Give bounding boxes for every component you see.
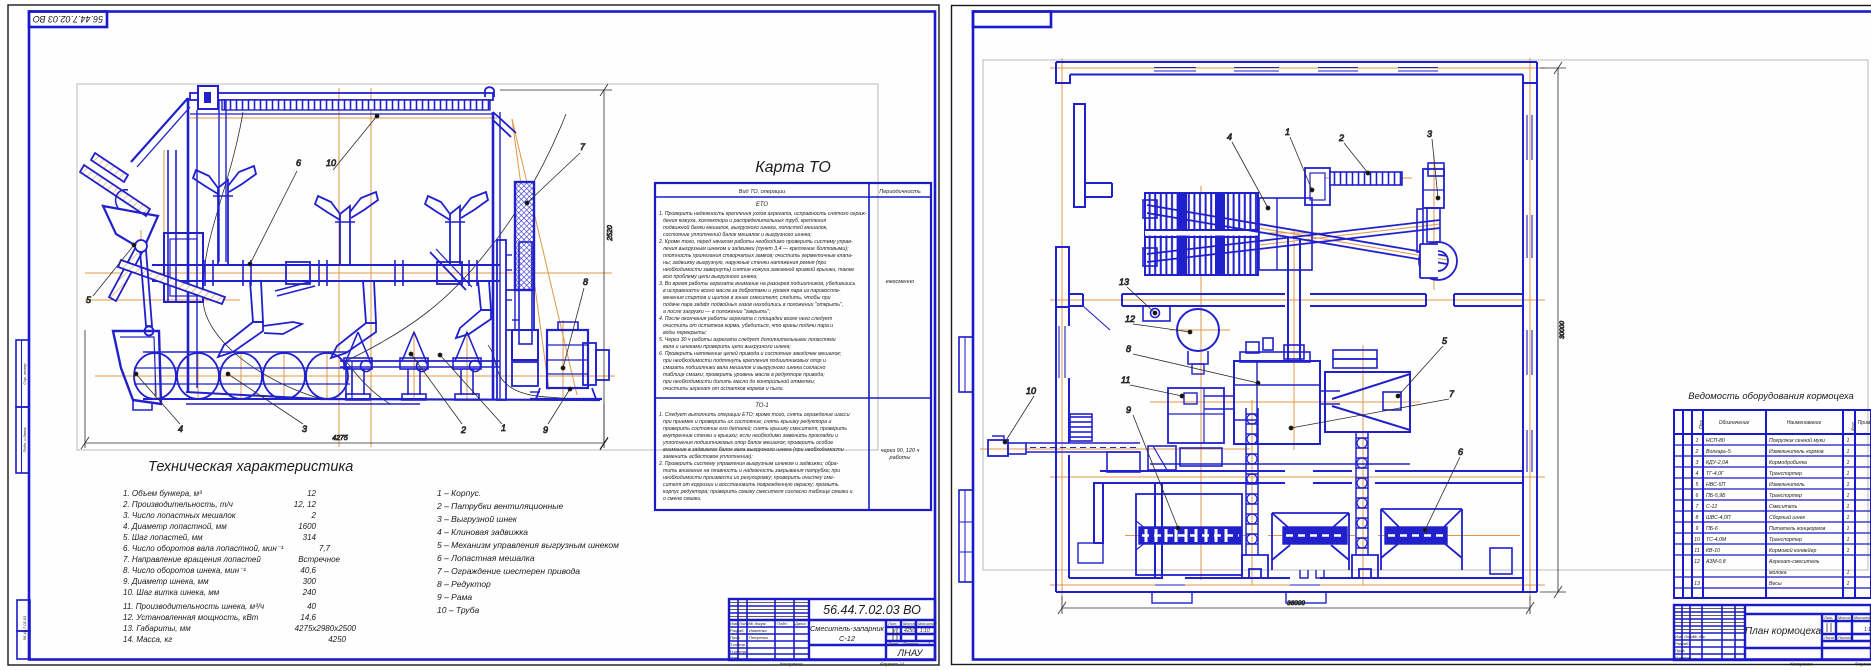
svg-text:4: 4 <box>178 424 183 434</box>
svg-text:КДУ-2,0А: КДУ-2,0А <box>1706 460 1729 466</box>
svg-text:2. Производительность, т/ч: 2. Производительность, т/ч <box>122 500 233 509</box>
svg-text:очистить от остатков корма, уб: очистить от остатков корма, убедиться, ч… <box>663 323 833 329</box>
svg-text:1 – Корпус.: 1 – Корпус. <box>437 488 481 498</box>
svg-text:9. Диаметр шнека, мм: 9. Диаметр шнека, мм <box>123 577 209 586</box>
svg-text:9: 9 <box>1696 526 1699 532</box>
svg-text:12: 12 <box>307 489 316 498</box>
svg-text:а после загрузки — в положении: а после загрузки — в положении "закрыть"… <box>663 309 771 315</box>
svg-text:Формат: Формат <box>1855 662 1871 667</box>
svg-text:2: 2 <box>311 511 317 520</box>
svg-text:3. Число лопастных мешалок: 3. Число лопастных мешалок <box>123 511 237 520</box>
svg-text:молока: молока <box>1769 570 1787 576</box>
svg-text:1600: 1600 <box>298 522 316 531</box>
svg-text:1: 1 <box>1847 449 1850 455</box>
svg-text:КВ-10: КВ-10 <box>1706 548 1720 554</box>
svg-text:12, 12: 12, 12 <box>294 500 317 509</box>
svg-text:8: 8 <box>583 277 588 287</box>
svg-text:Пров.: Пров. <box>730 635 741 640</box>
svg-text:13: 13 <box>1119 277 1129 287</box>
svg-text:4. Диаметр лопастной, мм: 4. Диаметр лопастной, мм <box>123 522 227 531</box>
svg-text:Карта ТО: Карта ТО <box>755 159 831 176</box>
svg-text:314: 314 <box>303 533 317 542</box>
svg-text:2 – Патрубки вентиляционные: 2 – Патрубки вентиляционные <box>436 501 564 511</box>
svg-text:8: 8 <box>1696 515 1699 521</box>
svg-text:1: 1 <box>1847 438 1850 444</box>
svg-text:10: 10 <box>326 158 336 168</box>
svg-text:14. Масса, кг: 14. Масса, кг <box>123 635 172 644</box>
svg-text:Н.контр.: Н.контр. <box>1675 655 1692 660</box>
svg-text:Листов: Листов <box>1837 635 1853 640</box>
svg-text:Питатель концкормов: Питатель концкормов <box>1769 526 1826 532</box>
svg-text:13: 13 <box>1694 581 1700 587</box>
svg-text:36000: 36000 <box>1287 600 1305 607</box>
svg-text:Иваненко: Иваненко <box>749 628 768 633</box>
svg-text:40: 40 <box>307 602 316 611</box>
svg-text:56.44.7.02.03 ВО: 56.44.7.02.03 ВО <box>33 14 103 24</box>
svg-text:2. Проверить систему управлени: 2. Проверить систему управления выгрузны… <box>658 461 839 467</box>
svg-text:№ док.: № док. <box>1693 634 1706 639</box>
svg-text:плотность прилегания створчаты: плотность прилегания створчатых замков; … <box>663 253 853 259</box>
svg-text:ления выгрузным шнеком и задви: ления выгрузным шнеком и задвижки (пункт… <box>662 246 849 252</box>
svg-text:№ докум.: № докум. <box>749 621 767 626</box>
svg-text:воды перекрыты;: воды перекрыты; <box>663 330 707 336</box>
svg-text:внутренние стенки и крышки; ес: внутренние стенки и крышки; если необход… <box>663 433 838 439</box>
svg-text:в исправности всего масла за д: в исправности всего масла за добротами и… <box>663 288 841 294</box>
svg-text:8. Число оборотов шнека, мин⁻¹: 8. Число оборотов шнека, мин⁻¹ <box>123 566 246 575</box>
svg-text:проверить состояние его детале: проверить состояние его деталей; снять к… <box>663 425 847 432</box>
svg-text:ТГ-4,0Г: ТГ-4,0Г <box>1706 471 1725 477</box>
svg-text:Т.контр.: Т.контр. <box>730 642 746 647</box>
svg-text:14,6: 14,6 <box>300 613 316 622</box>
svg-text:необходимости произвести их ре: необходимости произвести их регулировку;… <box>663 475 835 481</box>
svg-text:Кол.: Кол. <box>1851 421 1857 431</box>
svg-text:ТС-4,0М: ТС-4,0М <box>1706 537 1727 543</box>
svg-text:10. Шаг витка шнека, мм: 10. Шаг витка шнека, мм <box>123 588 220 597</box>
svg-text:уплотнения подшипниковых опор: уплотнения подшипниковых опор балок меша… <box>662 440 833 446</box>
svg-text:вала и шнеками проверить цепи: вала и шнеками проверить цепи выгрузного… <box>663 344 791 350</box>
svg-text:2: 2 <box>1695 449 1699 455</box>
svg-text:Смеситель: Смеситель <box>1769 504 1798 510</box>
svg-text:Дата: Дата <box>794 621 806 626</box>
svg-text:ны; задвижку выгрузную, наружн: ны; задвижку выгрузную, наружные стенки … <box>663 260 826 266</box>
svg-text:6: 6 <box>1458 447 1463 457</box>
svg-text:ШВС-4,0П: ШВС-4,0П <box>1706 515 1731 521</box>
svg-text:Измельчитель: Измельчитель <box>1769 482 1805 488</box>
svg-text:Весы: Весы <box>1769 581 1782 587</box>
svg-text:Периодичность: Периодичность <box>879 189 921 195</box>
svg-text:Утв.: Утв. <box>730 655 739 660</box>
svg-text:НСП-80: НСП-80 <box>1706 438 1725 444</box>
svg-text:10 – Труба: 10 – Труба <box>437 605 479 615</box>
svg-text:1: 1 <box>1847 548 1850 554</box>
svg-text:Формат А1: Формат А1 <box>880 662 905 667</box>
svg-text:необходимости завернуть) сняти: необходимости завернуть) снятие кожуха з… <box>663 266 854 273</box>
svg-text:ПБ-5,9Б: ПБ-5,9Б <box>1706 493 1726 499</box>
svg-text:Лит.: Лит. <box>1823 615 1833 620</box>
svg-text:Транспортер: Транспортер <box>1769 537 1802 543</box>
svg-text:Спр. номер: Спр. номер <box>22 363 27 385</box>
svg-text:при необходимости долить масло: при необходимости долить масло до контро… <box>663 378 816 385</box>
svg-text:тить внимание на плавность и н: тить внимание на плавность и надежность … <box>663 468 840 474</box>
svg-text:о смене смазки.: о смене смазки. <box>663 496 702 502</box>
svg-text:подаче пара задвbr подвойных г: подаче пара задвbr подвойных газов наход… <box>663 301 843 308</box>
svg-text:Измельчитель кормов: Измельчитель кормов <box>1769 449 1824 455</box>
svg-text:4275х2980х2500: 4275х2980х2500 <box>295 624 357 633</box>
svg-text:1. Проверить надежность крепле: 1. Проверить надежность крепления узлов … <box>659 211 867 217</box>
svg-text:С-12: С-12 <box>1706 504 1717 510</box>
svg-text:Подп.: Подп. <box>777 621 788 626</box>
svg-text:2: 2 <box>1338 133 1344 143</box>
svg-text:Наименование: Наименование <box>1787 420 1822 426</box>
svg-text:4: 4 <box>1696 471 1699 477</box>
svg-text:1: 1 <box>1847 482 1850 488</box>
svg-text:5 – Механизм управления выгруз: 5 – Механизм управления выгрузным шнеком <box>437 540 619 550</box>
svg-text:6. Число оборотов вала лопастн: 6. Число оборотов вала лопастной, мин⁻¹ <box>123 544 284 553</box>
svg-text:Подп. и дата: Подп. и дата <box>22 427 27 453</box>
svg-text:Изм: Изм <box>730 621 738 626</box>
svg-text:Ведомость оборудования кормоце: Ведомость оборудования кормоцеха <box>1688 391 1854 402</box>
svg-text:5. Шаг лопастей, мм: 5. Шаг лопастей, мм <box>123 533 203 542</box>
svg-text:4275: 4275 <box>332 435 348 442</box>
svg-text:ЛНАУ: ЛНАУ <box>897 648 924 659</box>
svg-text:11: 11 <box>1694 548 1699 554</box>
svg-text:внимание в задвижках балок вал: внимание в задвижках балок вала выгрузно… <box>663 447 844 453</box>
svg-text:7. Направление вращения лопаст: 7. Направление вращения лопастей <box>123 555 261 564</box>
svg-text:30000: 30000 <box>1559 321 1566 339</box>
svg-text:11: 11 <box>1121 375 1130 385</box>
svg-text:300: 300 <box>303 577 317 586</box>
svg-text:1: 1 <box>1847 537 1850 543</box>
svg-text:12: 12 <box>1125 314 1135 324</box>
svg-text:13. Габариты, мм: 13. Габариты, мм <box>123 624 191 633</box>
svg-text:Пров.: Пров. <box>1675 648 1686 653</box>
svg-text:56.44.7.02.03 ВО: 56.44.7.02.03 ВО <box>823 603 921 617</box>
svg-text:Транспортер: Транспортер <box>1769 493 1802 499</box>
svg-text:10: 10 <box>1694 537 1700 543</box>
svg-text:4250: 4250 <box>904 628 915 634</box>
svg-text:Погрузчик сенной муки: Погрузчик сенной муки <box>1769 437 1825 444</box>
svg-text:56.44.7.02.03: 56.44.7.02.03 <box>22 615 27 640</box>
svg-text:4 – Клиновая задвижка: 4 – Клиновая задвижка <box>437 527 528 537</box>
svg-text:240: 240 <box>302 588 317 597</box>
svg-text:сителя от коррозии и восстанов: сителя от коррозии и восстановить повреж… <box>663 482 839 488</box>
svg-text:1: 1 <box>1847 570 1850 576</box>
svg-text:9: 9 <box>543 425 548 435</box>
svg-text:1: 1 <box>1847 581 1850 587</box>
svg-text:2: 2 <box>460 425 466 435</box>
svg-text:4: 4 <box>1227 132 1232 142</box>
svg-text:11. Производительность шнека,: 11. Производительность шнека, м³/ч <box>123 602 264 611</box>
svg-text:ЕТО: ЕТО <box>756 202 769 208</box>
svg-text:6: 6 <box>296 158 301 168</box>
svg-text:9 – Рама: 9 – Рама <box>437 592 472 602</box>
svg-text:Н.контр.: Н.контр. <box>730 649 747 654</box>
svg-text:1: 1 <box>1847 471 1850 477</box>
svg-text:3: 3 <box>1696 460 1699 466</box>
svg-text:1: 1 <box>1847 460 1850 466</box>
svg-text:Техническая характеристика: Техническая характеристика <box>148 459 353 475</box>
svg-text:6: 6 <box>1696 493 1699 499</box>
svg-text:4. После окончания работы агре: 4. После окончания работы агрегата с пло… <box>659 316 833 322</box>
svg-text:Копировал: Копировал <box>1790 662 1813 667</box>
svg-text:5. Через 30 ч работы агрегата: 5. Через 30 ч работы агрегата следует до… <box>659 337 836 343</box>
svg-text:6. Проверить натяжение цепей п: 6. Проверить натяжение цепей привода и с… <box>659 350 842 357</box>
svg-text:всю проблему цепи выгрузного ш: всю проблему цепи выгрузного шнека; <box>663 274 758 280</box>
svg-text:состояние уплотнений балок меш: состояние уплотнений балок мешалок и выг… <box>663 231 812 238</box>
svg-text:Сборный шнек: Сборный шнек <box>1769 514 1805 521</box>
svg-text:40,6: 40,6 <box>300 566 316 575</box>
svg-text:3: 3 <box>1427 129 1432 139</box>
svg-text:1. Объем бункера, м³: 1. Объем бункера, м³ <box>123 489 202 498</box>
svg-text:3 – Выгрузной шнек: 3 – Выгрузной шнек <box>437 514 518 524</box>
svg-text:8: 8 <box>1126 344 1131 354</box>
svg-text:Петренко: Петренко <box>749 635 769 640</box>
svg-text:1:10: 1:10 <box>920 628 930 634</box>
svg-text:Агрегат-смеситель: Агрегат-смеситель <box>1768 559 1820 565</box>
svg-text:таблице смазки; проверить уров: таблице смазки; проверить уровень масла … <box>663 372 825 378</box>
svg-text:Поз.: Поз. <box>1699 419 1705 429</box>
svg-text:С-12: С-12 <box>839 634 855 643</box>
svg-text:12: 12 <box>1694 559 1700 565</box>
svg-text:3: 3 <box>302 424 307 434</box>
svg-text:10: 10 <box>1026 386 1036 396</box>
svg-text:12. Установленная мощность, кВ: 12. Установленная мощность, кВт <box>123 613 259 622</box>
svg-text:4250: 4250 <box>328 635 346 644</box>
svg-text:Масштаб: Масштаб <box>1854 615 1871 620</box>
svg-text:Лит.: Лит. <box>887 621 897 626</box>
svg-text:Кормодробилка: Кормодробилка <box>1769 460 1807 466</box>
svg-text:5: 5 <box>1696 482 1699 488</box>
svg-text:дения кожуха, коллектора и рас: дения кожуха, коллектора и распределител… <box>663 218 826 224</box>
svg-text:работы: работы <box>889 455 911 461</box>
svg-text:Масса: Масса <box>903 621 916 626</box>
svg-text:корпус редуктора; проверить см: корпус редуктора; проверить смазку смеси… <box>663 489 853 495</box>
svg-text:1: 1 <box>1285 127 1290 137</box>
svg-text:Лист: Лист <box>1823 635 1835 640</box>
svg-text:НВС-5П: НВС-5П <box>1706 482 1725 488</box>
svg-text:2. Кроме того, перед началом р: 2. Кроме того, перед началом работы необ… <box>658 239 853 245</box>
svg-text:Разраб.: Разраб. <box>1675 641 1689 646</box>
svg-text:1: 1 <box>928 641 930 646</box>
svg-text:8 – Редуктор: 8 – Редуктор <box>437 579 491 589</box>
svg-text:7 – Ограждение шестерен привод: 7 – Ограждение шестерен привода <box>437 566 580 576</box>
svg-text:Копировал: Копировал <box>780 662 803 667</box>
svg-text:Масштаб: Масштаб <box>918 621 937 626</box>
svg-text:АЗМ-0,8: АЗМ-0,8 <box>1705 559 1726 565</box>
svg-text:через 90, 120 ч: через 90, 120 ч <box>881 448 920 454</box>
svg-text:7,7: 7,7 <box>319 544 331 553</box>
svg-text:Транспортер: Транспортер <box>1769 471 1802 477</box>
svg-text:Изм: Изм <box>1675 634 1683 639</box>
svg-text:1: 1 <box>1847 504 1850 510</box>
svg-text:Масса: Масса <box>1838 615 1851 620</box>
svg-text:1:10: 1:10 <box>1864 627 1871 633</box>
svg-text:менения спиртов и щитов в зона: менения спиртов и щитов в зонах смесител… <box>663 295 831 301</box>
svg-text:при необходимости подтянуть кр: при необходимости подтянуть крепления по… <box>663 358 826 364</box>
svg-text:6 – Лопастная мешалка: 6 – Лопастная мешалка <box>437 553 535 563</box>
svg-text:Волгарь-5: Волгарь-5 <box>1706 449 1731 455</box>
svg-text:1: 1 <box>1847 526 1850 532</box>
svg-text:заменить асбестовое уплотнение: заменить асбестовое уплотнение); <box>662 454 753 460</box>
svg-text:1: 1 <box>1847 515 1850 521</box>
svg-text:ежесменно: ежесменно <box>886 279 914 285</box>
svg-text:очистить агрегат от остатков к: очистить агрегат от остатков кормов и пы… <box>663 386 784 392</box>
svg-text:План кормоцеха: План кормоцеха <box>1745 626 1822 637</box>
svg-text:Лист: Лист <box>887 641 899 646</box>
svg-text:ПБ-6: ПБ-6 <box>1706 526 1718 532</box>
svg-text:Вид ТО, операции: Вид ТО, операции <box>739 189 785 195</box>
svg-text:1: 1 <box>1847 493 1850 499</box>
svg-text:Смеситель-запарник: Смеситель-запарник <box>810 624 885 633</box>
svg-text:подвижной балки мешалок, выгру: подвижной балки мешалок, выгрузного шнек… <box>663 224 828 231</box>
svg-text:Кормовой конвейер: Кормовой конвейер <box>1769 547 1816 554</box>
svg-text:1: 1 <box>501 423 506 433</box>
svg-text:Прим: Прим <box>1858 420 1871 426</box>
svg-text:Разраб.: Разраб. <box>730 628 744 633</box>
svg-text:Листов: Листов <box>902 641 918 646</box>
svg-text:ТО-1: ТО-1 <box>755 403 769 409</box>
svg-text:Встречное: Встречное <box>298 555 340 564</box>
svg-text:Обозначение: Обозначение <box>1719 420 1750 426</box>
svg-text:9: 9 <box>1126 405 1131 415</box>
svg-text:1. Следует выполнить операции: 1. Следует выполнить операции ЕТО; кроме… <box>659 412 850 418</box>
svg-text:1: 1 <box>1696 438 1699 444</box>
svg-text:смазать подшипники вала мешало: смазать подшипники вала мешалок и выгруз… <box>663 365 826 371</box>
svg-text:2520: 2520 <box>607 225 614 242</box>
svg-text:3. Во время работы агрегата вн: 3. Во время работы агрегата внимание на … <box>659 281 856 287</box>
svg-text:при приемке и проверить их сос: при приемке и проверить их состояние; сн… <box>663 419 831 425</box>
